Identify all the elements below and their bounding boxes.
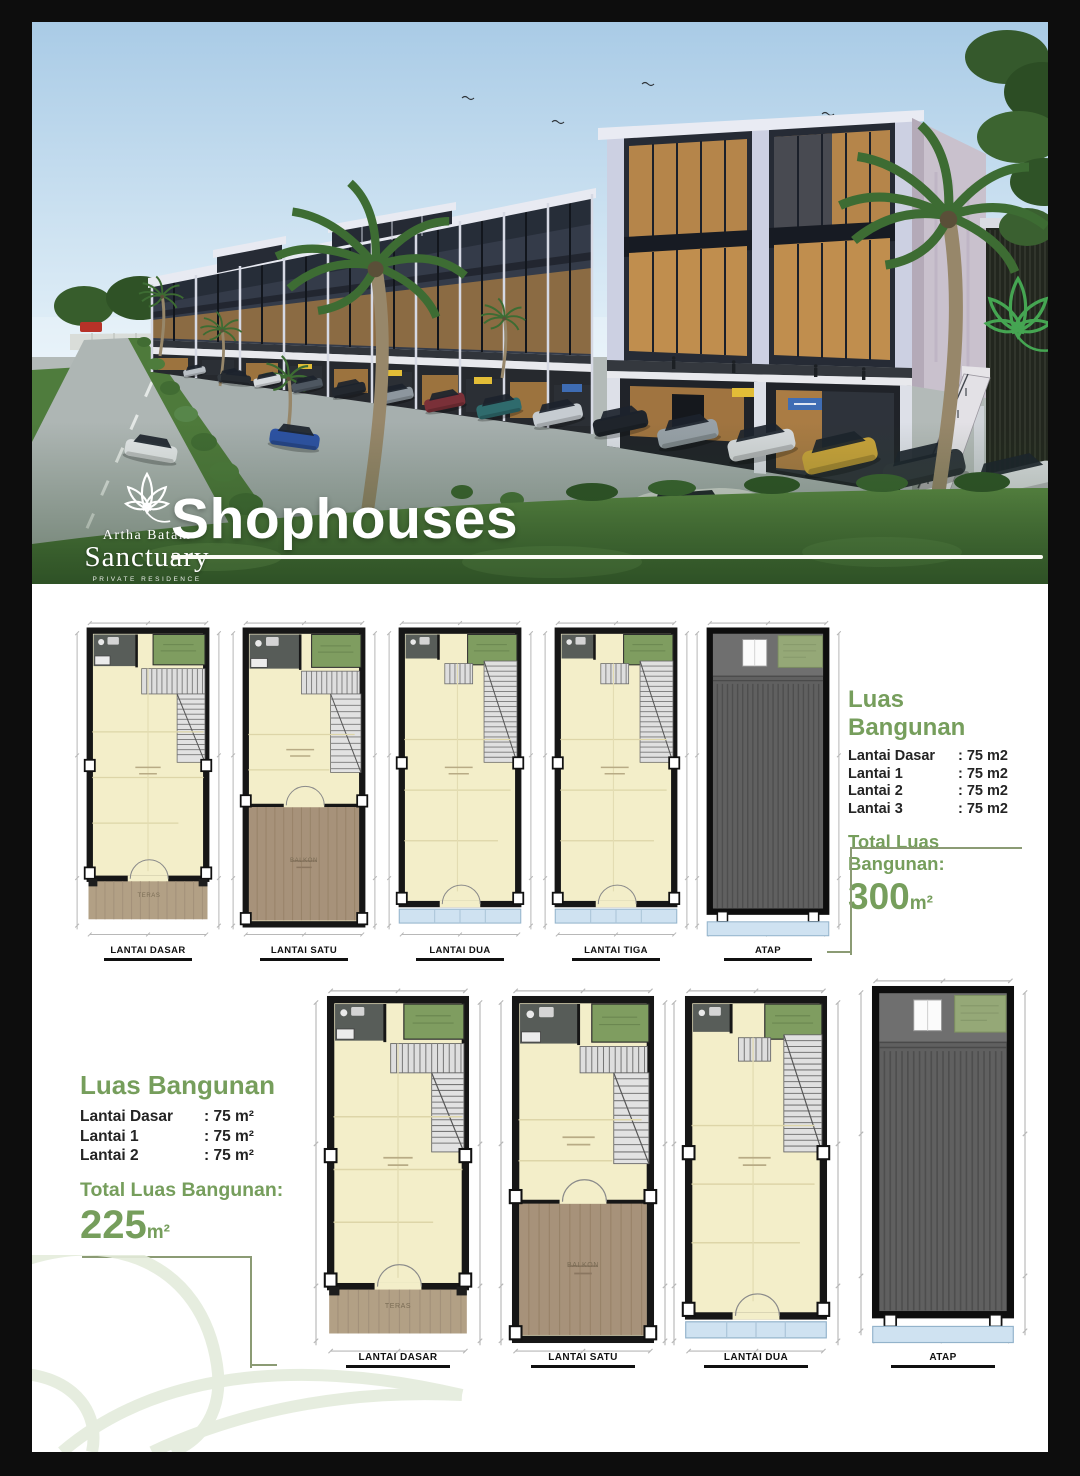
plan-label-atap: ATAP <box>693 945 843 961</box>
area-row: Lantai 1 : 75 m² <box>80 1127 306 1147</box>
leaf-watermark <box>32 1255 502 1452</box>
room-label-balkon: BALKON <box>264 858 344 864</box>
floor-plan-lantai-dua-300 <box>384 618 536 937</box>
area-row: Lantai Dasar : 75 m² <box>80 1107 306 1127</box>
title-underline <box>171 555 1043 559</box>
area-row: Lantai 1 : 75 m2 <box>848 766 1024 784</box>
area-row: Lantai 2 : 75 m2 <box>848 783 1024 801</box>
area-title: Luas Bangunan <box>848 686 1024 742</box>
area-row: Lantai 2 : 75 m² <box>80 1146 306 1166</box>
plan-label-lantai-satu: LANTAI SATU <box>229 945 379 961</box>
plan-label-lantai-satu: LANTAI SATU <box>503 1352 663 1368</box>
floor-plan-lantai-satu-225 <box>495 985 671 1354</box>
building-area-panel-225: Luas Bangunan Lantai Dasar : 75 m² Lanta… <box>80 1070 306 1248</box>
floor-plan-atap-300 <box>692 618 844 937</box>
hero-section: Artha Batam Sanctuary PRIVATE RESIDENCE … <box>32 22 1048 584</box>
room-label-balkon: BALKON <box>541 1262 625 1269</box>
brand-tagline: PRIVATE RESIDENCE <box>70 576 224 583</box>
area-title: Luas Bangunan <box>80 1070 306 1101</box>
floor-plan-atap-225 <box>855 975 1031 1344</box>
plan-label-lantai-dua: LANTAI DUA <box>385 945 535 961</box>
floor-plan-lantai-dua-225 <box>668 985 844 1354</box>
plan-label-atap: ATAP <box>863 1352 1023 1368</box>
brand-leaf-icon <box>118 468 176 528</box>
bracket-line-top <box>850 847 1022 955</box>
total-area-value: 225m² <box>80 1203 306 1248</box>
floor-plan-lantai-tiga-300 <box>540 618 692 937</box>
area-row: Lantai 3 : 75 m2 <box>848 801 1024 819</box>
area-rows: Lantai Dasar : 75 m² Lantai 1 : 75 m² La… <box>80 1107 306 1166</box>
plan-label-lantai-tiga: LANTAI TIGA <box>541 945 691 961</box>
room-label-teras: TERAS <box>110 893 188 899</box>
area-rows: Lantai Dasar : 75 m2 Lantai 1 : 75 m2 La… <box>848 748 1024 818</box>
flyer-page: Artha Batam Sanctuary PRIVATE RESIDENCE … <box>0 0 1080 1476</box>
area-row: Lantai Dasar : 75 m2 <box>848 748 1024 766</box>
total-area-label: Total Luas Bangunan: <box>80 1179 306 1202</box>
bracket-line-top-tail <box>827 951 852 953</box>
plan-label-lantai-dasar: LANTAI DASAR <box>73 945 223 961</box>
page-title: Shophouses <box>171 486 518 552</box>
floor-plan-lantai-satu-300 <box>228 618 380 937</box>
plan-label-lantai-dua: LANTAI DUA <box>676 1352 836 1368</box>
floor-plan-lantai-dasar-300 <box>72 618 224 937</box>
